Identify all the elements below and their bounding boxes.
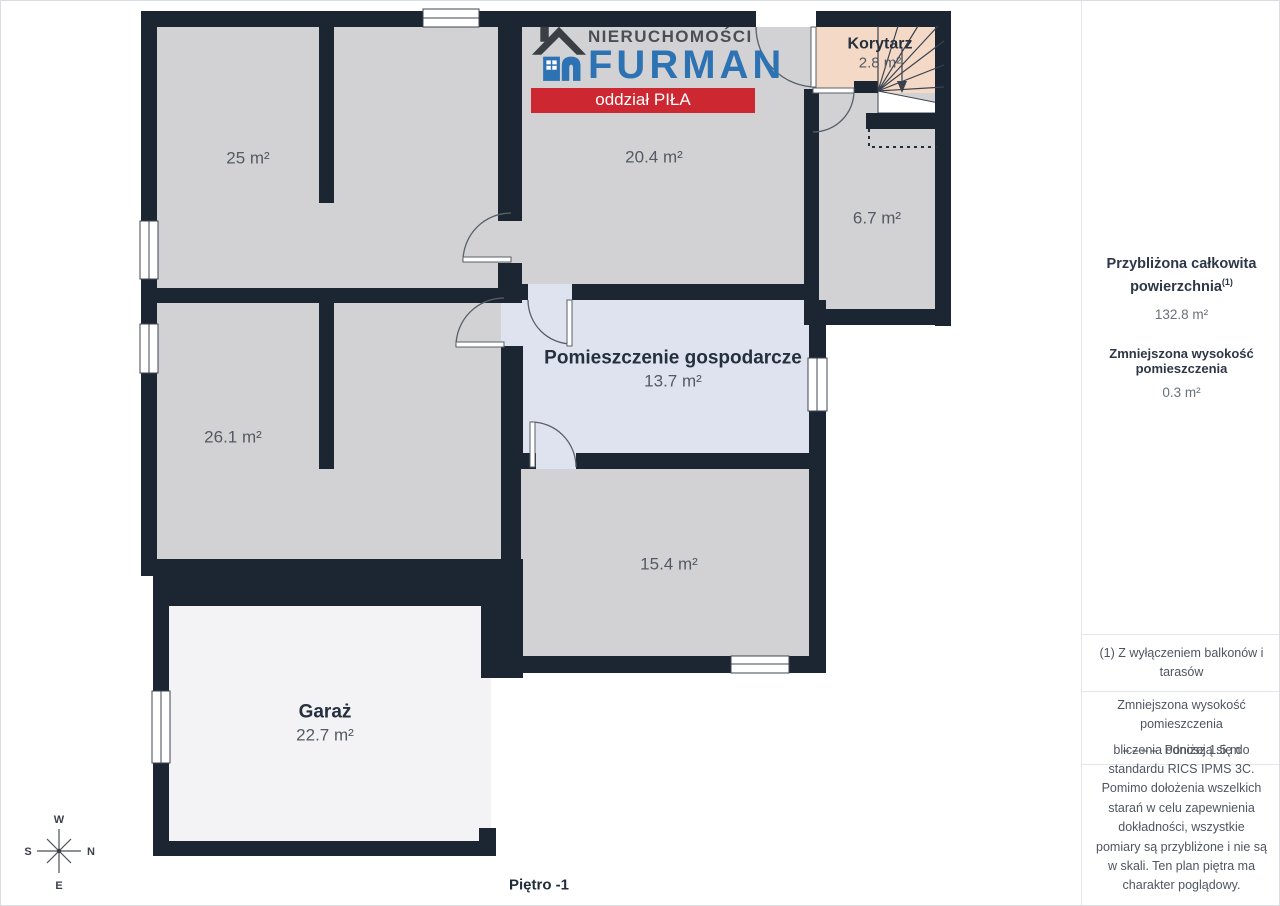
door-leaf — [463, 257, 511, 262]
room-area: 13.7 m² — [644, 371, 702, 390]
room-label-gospodarcze: Pomieszczenie gospodarcze 13.7 m² — [544, 347, 802, 392]
room-label-154: 15.4 m² — [640, 553, 698, 574]
room-area: 25 m² — [226, 148, 269, 167]
compass-top-label: W — [54, 814, 65, 826]
door-leaf — [811, 27, 816, 87]
room-label-67: 6.7 m² — [853, 207, 901, 228]
door-leaf — [530, 422, 535, 467]
agency-name: NIERUCHOMOŚCI FURMAN — [588, 19, 785, 84]
door-leaf — [456, 342, 504, 347]
footnote-text: (1) Z wyłączeniem balkonów i tarasów — [1092, 644, 1271, 682]
room-name: Pomieszczenie gospodarcze — [544, 347, 802, 371]
room-label-25: 25 m² — [226, 147, 269, 168]
footnote-section: (1) Z wyłączeniem balkonów i tarasów — [1082, 634, 1280, 691]
room-area: 15.4 m² — [640, 554, 698, 573]
room-name: Garaż — [296, 701, 354, 725]
room-area: 2.8 m² — [859, 55, 902, 72]
room-label-204: 20.4 m² — [625, 146, 683, 167]
total-area-title: Przybliżona całkowita powierzchnia(1) — [1082, 254, 1280, 298]
reduced-height-title: Zmniejszona wysokość pomieszczenia — [1082, 346, 1280, 376]
room-area: 22.7 m² — [296, 725, 354, 744]
floorplan-canvas: 25 m² 20.4 m² Korytarz 2.8 m² 6.7 m² 26.… — [1, 1, 1081, 906]
area-summary: Przybliżona całkowita powierzchnia(1) 13… — [1082, 254, 1280, 424]
room-area: 26.1 m² — [204, 427, 262, 446]
agency-name-main: FURMAN — [588, 47, 785, 84]
compass-left-label: S — [24, 846, 31, 858]
reduced-height-value: 0.3 m² — [1082, 385, 1280, 400]
door-leaf — [567, 300, 572, 346]
disclaimer-section: bliczenia odnoszą się do standardu RICS … — [1082, 764, 1280, 906]
room-label-garaz: Garaż 22.7 m² — [296, 701, 354, 746]
room-area: 6.7 m² — [853, 208, 901, 227]
total-area-value: 132.8 m² — [1082, 307, 1280, 322]
footnote-marker: (1) — [1222, 277, 1233, 287]
floorplan-page: 25 m² 20.4 m² Korytarz 2.8 m² 6.7 m² 26.… — [0, 0, 1280, 906]
compass-right-label: N — [87, 846, 95, 858]
agency-logo: NIERUCHOMOŚCI FURMAN oddział PIŁA — [531, 19, 755, 113]
room-area: 20.4 m² — [625, 147, 683, 166]
compass-bottom-label: E — [55, 880, 62, 892]
floorplan-drawing — [1, 1, 1081, 906]
disclaimer-text: bliczenia odnoszą się do standardu RICS … — [1095, 741, 1268, 896]
floor-title: Piętro -1 — [509, 877, 569, 894]
agency-branch-banner: oddział PIŁA — [531, 88, 755, 113]
agency-logo-top: NIERUCHOMOŚCI FURMAN — [531, 19, 755, 85]
legend-title: Zmniejszona wysokość pomieszczenia — [1092, 696, 1271, 734]
compass-rose: W N E S — [17, 811, 103, 897]
door-leaf — [813, 88, 854, 93]
room-label-korytarz: Korytarz 2.8 m² — [848, 35, 913, 74]
info-sidebar: Przybliżona całkowita powierzchnia(1) 13… — [1081, 1, 1280, 906]
house-icon — [531, 19, 587, 85]
room-label-261: 26.1 m² — [204, 426, 262, 447]
room-name: Korytarz — [848, 35, 913, 55]
